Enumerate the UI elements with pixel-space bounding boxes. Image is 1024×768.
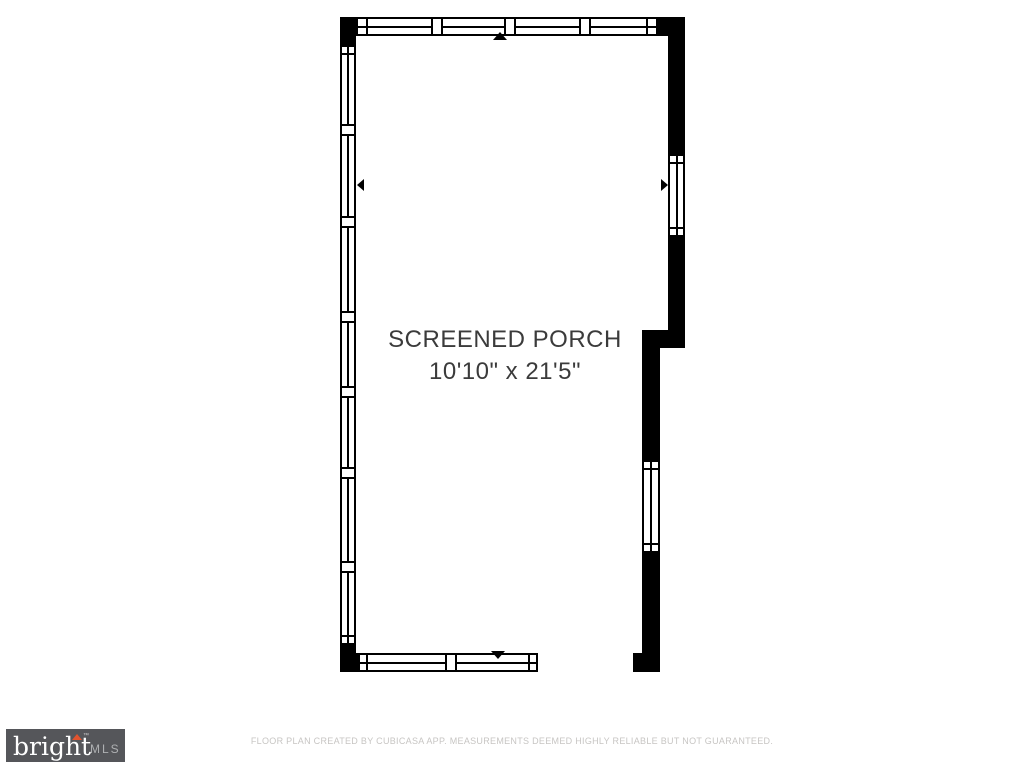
window-cap [646, 19, 648, 34]
window-cap [644, 468, 658, 470]
window-right-lower [642, 460, 660, 553]
window-right-upper [668, 154, 685, 237]
window-bottom [358, 653, 538, 672]
floor-plan: SCREENED PORCH 10'10" x 21'5" [0, 0, 1024, 768]
window-cap [670, 162, 683, 164]
window-glass-line [650, 462, 652, 551]
arrow-up-icon [493, 32, 507, 40]
arrow-left-icon [357, 179, 364, 191]
window-mullion [342, 561, 354, 573]
window-top [356, 17, 658, 36]
window-mullion [431, 19, 443, 34]
arrow-down-icon [491, 651, 505, 659]
window-cap [342, 53, 354, 55]
window-cap [366, 19, 368, 34]
wall-bottom-right-corner [633, 653, 660, 672]
room-dimensions: 10'10" x 21'5" [340, 356, 670, 388]
arrow-right-icon [661, 179, 668, 191]
disclaimer-text: FLOOR PLAN CREATED BY CUBICASA APP. MEAS… [0, 736, 1024, 746]
window-mullion [579, 19, 591, 34]
window-cap [342, 635, 354, 637]
wall-bottom-left-corner [340, 653, 359, 672]
window-glass-line [676, 156, 678, 235]
window-cap [366, 655, 368, 670]
window-cap [644, 543, 658, 545]
room-name: SCREENED PORCH [340, 324, 670, 356]
window-mullion [342, 467, 354, 479]
window-mullion [445, 655, 457, 670]
window-cap [528, 655, 530, 670]
window-mullion [342, 216, 354, 228]
room-label-block: SCREENED PORCH 10'10" x 21'5" [340, 324, 670, 388]
window-mullion [342, 124, 354, 136]
window-mullion [342, 311, 354, 323]
window-cap [670, 227, 683, 229]
